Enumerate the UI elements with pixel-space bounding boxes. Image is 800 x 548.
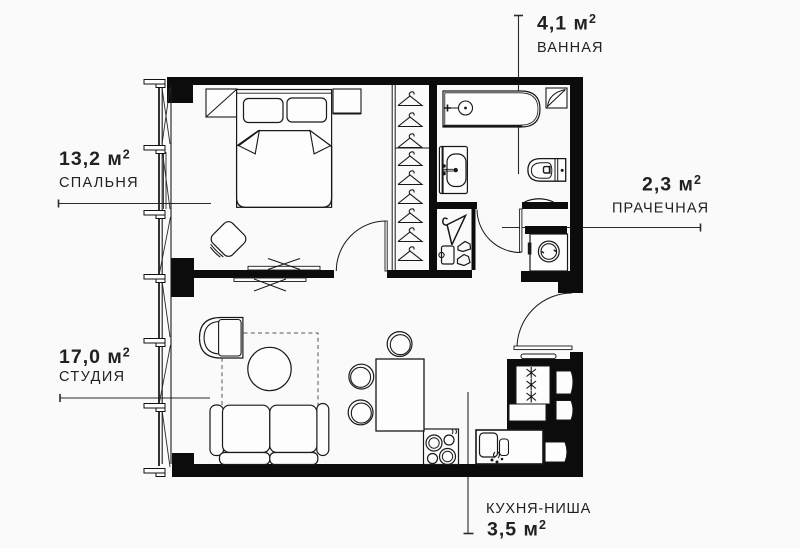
svg-text:КУХНЯ-НИША: КУХНЯ-НИША bbox=[486, 501, 591, 517]
svg-text:17,0 м2: 17,0 м2 bbox=[59, 346, 131, 369]
svg-text:13,2 м2: 13,2 м2 bbox=[59, 148, 131, 171]
svg-text:ПРАЧЕЧНАЯ: ПРАЧЕЧНАЯ bbox=[612, 201, 709, 217]
svg-text:3,5 м2: 3,5 м2 bbox=[487, 518, 547, 541]
svg-text:СТУДИЯ: СТУДИЯ bbox=[59, 369, 126, 385]
svg-text:2,3 м2: 2,3 м2 bbox=[642, 173, 702, 196]
svg-text:4,1 м2: 4,1 м2 bbox=[537, 12, 597, 35]
svg-text:СПАЛЬНЯ: СПАЛЬНЯ bbox=[59, 175, 139, 191]
svg-text:ВАННАЯ: ВАННАЯ bbox=[537, 40, 604, 56]
